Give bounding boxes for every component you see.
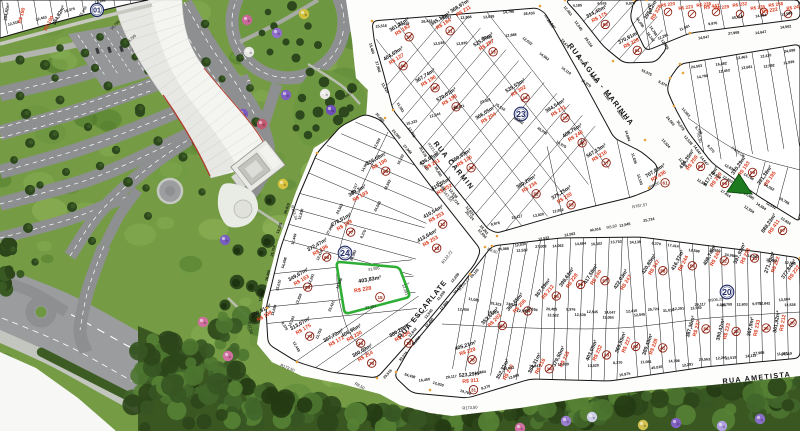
svg-text:9,976: 9,976 bbox=[626, 1, 635, 5]
svg-text:59: 59 bbox=[750, 170, 756, 175]
svg-text:12,538: 12,538 bbox=[784, 303, 795, 307]
svg-text:9,976: 9,976 bbox=[597, 2, 606, 6]
svg-text:29,117: 29,117 bbox=[695, 302, 706, 307]
svg-text:12: 12 bbox=[440, 222, 446, 227]
svg-text:14,324: 14,324 bbox=[487, 310, 499, 314]
svg-text:56: 56 bbox=[578, 282, 584, 287]
svg-text:57: 57 bbox=[602, 279, 608, 284]
svg-text:13: 13 bbox=[604, 353, 610, 358]
svg-text:12,803: 12,803 bbox=[736, 303, 747, 307]
svg-text:01: 01 bbox=[93, 8, 101, 15]
svg-text:65: 65 bbox=[698, 164, 704, 169]
svg-text:54: 54 bbox=[703, 327, 709, 332]
svg-text:14,047: 14,047 bbox=[529, 364, 540, 368]
svg-text:13: 13 bbox=[491, 50, 497, 55]
svg-text:4,185: 4,185 bbox=[717, 303, 726, 307]
svg-text:62: 62 bbox=[633, 344, 639, 349]
svg-text:8,370: 8,370 bbox=[613, 361, 622, 365]
svg-text:59: 59 bbox=[690, 264, 696, 269]
svg-text:4,185: 4,185 bbox=[573, 3, 582, 7]
svg-text:14,047: 14,047 bbox=[604, 310, 615, 314]
svg-text:20,485: 20,485 bbox=[546, 307, 557, 311]
svg-text:16: 16 bbox=[358, 341, 364, 346]
svg-text:52: 52 bbox=[534, 192, 540, 197]
svg-text:34: 34 bbox=[469, 166, 475, 171]
svg-text:61: 61 bbox=[663, 181, 669, 186]
svg-text:24,563: 24,563 bbox=[699, 357, 710, 361]
svg-text:12,839: 12,839 bbox=[558, 362, 569, 366]
svg-text:25: 25 bbox=[734, 329, 740, 334]
svg-text:34,139: 34,139 bbox=[629, 240, 641, 245]
svg-text:14: 14 bbox=[547, 367, 553, 372]
svg-text:73: 73 bbox=[307, 334, 313, 339]
svg-text:15: 15 bbox=[563, 116, 569, 121]
svg-text:11,081: 11,081 bbox=[640, 360, 651, 364]
svg-text:41: 41 bbox=[660, 346, 666, 351]
svg-text:20: 20 bbox=[723, 288, 732, 297]
svg-text:55: 55 bbox=[554, 294, 560, 299]
svg-text:14,798: 14,798 bbox=[668, 359, 679, 363]
svg-text:63: 63 bbox=[603, 22, 609, 27]
svg-text:31: 31 bbox=[471, 388, 477, 393]
svg-text:24,088: 24,088 bbox=[498, 247, 510, 252]
svg-text:12,842: 12,842 bbox=[759, 301, 770, 305]
svg-text:12,410: 12,410 bbox=[626, 309, 638, 314]
svg-text:12,291: 12,291 bbox=[673, 306, 685, 311]
svg-text:13,084: 13,084 bbox=[602, 315, 614, 319]
svg-text:77: 77 bbox=[348, 230, 354, 235]
svg-text:78: 78 bbox=[470, 358, 476, 363]
svg-text:24: 24 bbox=[341, 249, 350, 258]
svg-text:11: 11 bbox=[448, 29, 453, 34]
svg-text:14,062: 14,062 bbox=[552, 244, 564, 249]
svg-text:64: 64 bbox=[401, 64, 407, 69]
svg-text:12,532: 12,532 bbox=[516, 248, 528, 253]
svg-text:14,684: 14,684 bbox=[575, 242, 587, 247]
svg-text:12,545: 12,545 bbox=[587, 310, 598, 314]
svg-text:68: 68 bbox=[433, 86, 439, 91]
svg-text:58: 58 bbox=[660, 269, 666, 274]
svg-text:61: 61 bbox=[635, 48, 641, 53]
svg-text:16: 16 bbox=[580, 141, 586, 146]
svg-text:66: 66 bbox=[383, 169, 389, 174]
svg-text:14: 14 bbox=[434, 246, 440, 251]
svg-text:27,008: 27,008 bbox=[535, 244, 547, 249]
svg-text:26: 26 bbox=[764, 326, 770, 331]
svg-text:20: 20 bbox=[790, 320, 796, 325]
svg-text:12,450: 12,450 bbox=[458, 308, 469, 312]
svg-text:12,532: 12,532 bbox=[547, 313, 558, 317]
svg-text:53: 53 bbox=[569, 203, 575, 208]
svg-text:68: 68 bbox=[324, 255, 330, 260]
svg-text:12: 12 bbox=[722, 259, 728, 264]
svg-text:14: 14 bbox=[523, 96, 529, 101]
svg-text:12,539: 12,539 bbox=[575, 313, 586, 317]
svg-text:16: 16 bbox=[407, 35, 413, 40]
svg-text:13,820: 13,820 bbox=[588, 364, 599, 368]
svg-text:9,976: 9,976 bbox=[566, 307, 575, 311]
svg-text:16,102: 16,102 bbox=[591, 242, 603, 247]
svg-text:13,753: 13,753 bbox=[610, 240, 622, 245]
svg-text:67: 67 bbox=[780, 228, 786, 233]
svg-text:75: 75 bbox=[369, 361, 375, 366]
svg-text:66: 66 bbox=[722, 181, 728, 186]
svg-text:63: 63 bbox=[500, 323, 506, 328]
svg-text:15: 15 bbox=[377, 295, 383, 300]
svg-text:17: 17 bbox=[604, 161, 610, 166]
